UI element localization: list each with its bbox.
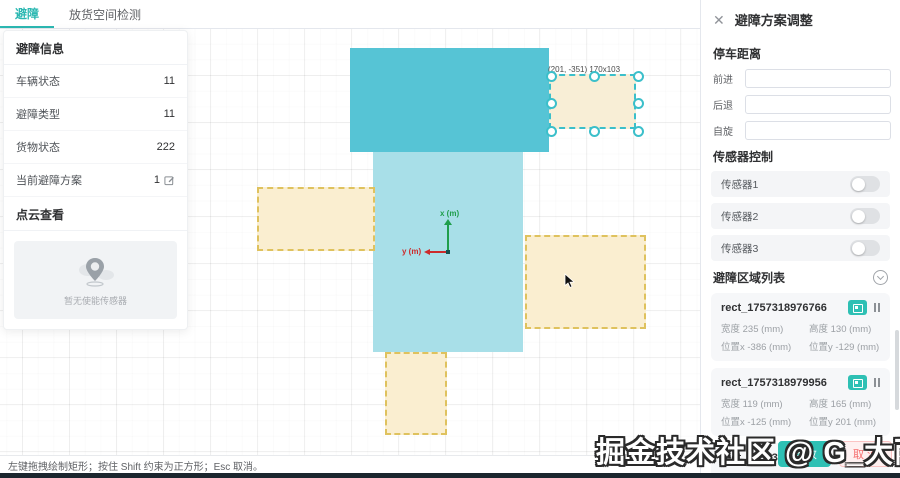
app-window: (201, -351) 170x103 x (m) y (m) 避障 放货空间检…	[0, 0, 900, 478]
axis-x-arrowhead	[444, 219, 452, 225]
resize-handle[interactable]	[589, 71, 600, 82]
crop-edit-icon[interactable]	[848, 375, 867, 390]
spec-pos-x: 位置x -386 (mm)	[721, 339, 809, 353]
card-top: rect_1757318976766	[721, 300, 880, 315]
pause-icon[interactable]	[874, 303, 881, 312]
toggle-knob	[852, 178, 865, 191]
resize-handle[interactable]	[633, 71, 644, 82]
info-row-avoid-type: 避障类型 11	[4, 98, 187, 131]
crop-edit-icon[interactable]	[848, 300, 867, 315]
tab-placement-space-detect[interactable]: 放货空间检测	[54, 0, 156, 28]
info-row-cargo-status: 货物状态 222	[4, 131, 187, 164]
location-pin-icon	[75, 254, 117, 290]
zone-yellow-left[interactable]	[257, 187, 375, 251]
info-row-label: 货物状态	[16, 139, 60, 155]
edit-icon[interactable]	[164, 175, 175, 186]
scrollbar-thumb[interactable]	[895, 330, 899, 410]
field-rotation-label: 自旋	[713, 123, 739, 138]
selected-rect-label: (201, -351) 170x103	[548, 65, 620, 74]
adjust-panel-header: ✕ 避障方案调整	[701, 0, 900, 37]
spec-height: 高度 165 (mm)	[809, 396, 880, 410]
spec-width: 宽度 235 (mm)	[721, 321, 809, 335]
forward-distance-input[interactable]	[745, 69, 891, 88]
info-row-value: 11	[164, 108, 175, 120]
mouse-cursor-icon	[563, 273, 577, 289]
toggle-knob	[852, 242, 865, 255]
zone-yellow-right[interactable]	[525, 235, 646, 329]
resize-handle[interactable]	[589, 126, 600, 137]
spec-width: 宽度 119 (mm)	[721, 396, 809, 410]
watermark-text: 掘金技术社区 @ G_大雨	[596, 429, 900, 471]
info-row-value: 222	[157, 141, 175, 153]
spec-pos-x: 位置x -125 (mm)	[721, 414, 809, 428]
rotation-distance-input[interactable]	[745, 121, 891, 140]
axis-origin	[446, 250, 450, 254]
bottom-strip	[0, 473, 900, 478]
sensor-row-1: 传感器1	[711, 171, 890, 197]
info-row-label: 车辆状态	[16, 73, 60, 89]
info-row-current-plan: 当前避障方案 1	[4, 164, 187, 197]
pointcloud-placeholder: 暂无使能传感器	[14, 241, 177, 319]
spec-pos-y: 位置y -129 (mm)	[809, 339, 880, 353]
field-forward: 前进	[713, 69, 888, 88]
zone-selected[interactable]: (201, -351) 170x103	[549, 74, 636, 129]
sensor-2-toggle[interactable]	[850, 208, 880, 224]
pause-icon[interactable]	[874, 378, 881, 387]
card-top: rect_1757318979956	[721, 375, 880, 390]
field-rotation: 自旋	[713, 121, 888, 140]
info-row-vehicle-status: 车辆状态 11	[4, 65, 187, 98]
info-row-label: 当前避障方案	[16, 172, 82, 188]
axis-x-arrow	[447, 224, 449, 251]
sensor-row-2: 传感器2	[711, 203, 890, 229]
spec-pos-y: 位置y 201 (mm)	[809, 414, 880, 428]
sensor-1-label: 传感器1	[721, 177, 758, 192]
axis-y-label: y (m)	[402, 247, 421, 256]
stop-distance-title: 停车距离	[713, 45, 888, 62]
sensor-2-label: 传感器2	[721, 209, 758, 224]
resize-handle[interactable]	[546, 71, 557, 82]
pointcloud-title: 点云查看	[4, 197, 187, 231]
info-row-value: 1	[154, 174, 175, 186]
card-icons	[848, 300, 881, 315]
sensor-control-title: 传感器控制	[713, 148, 888, 165]
info-row-value: 11	[164, 75, 175, 87]
axis-y-arrowhead	[424, 249, 430, 255]
rect-name: rect_1757318976766	[721, 302, 827, 314]
rect-specs: 宽度 119 (mm) 高度 165 (mm) 位置x -125 (mm) 位置…	[721, 396, 880, 428]
canvas-hint-text: 左键拖拽绘制矩形；按住 Shift 约束为正方形；Esc 取消。	[0, 458, 263, 473]
tab-placement-space-detect-label: 放货空间检测	[69, 6, 141, 23]
zone-yellow-bottom[interactable]	[385, 352, 447, 435]
field-forward-label: 前进	[713, 71, 739, 86]
sensor-3-toggle[interactable]	[850, 240, 880, 256]
resize-handle[interactable]	[546, 126, 557, 137]
adjust-panel-title: 避障方案调整	[735, 10, 813, 29]
collapse-icon[interactable]	[873, 270, 888, 285]
adjust-panel: ✕ 避障方案调整 停车距离 前进 后退 自旋 传感器控制 传感器1 传感器2 传…	[700, 0, 900, 473]
sensor-3-label: 传感器3	[721, 241, 758, 256]
area-list-item[interactable]: rect_1757318976766 宽度 235 (mm) 高度 130 (m…	[711, 293, 890, 361]
resize-handle[interactable]	[633, 98, 644, 109]
tab-bar: 避障 放货空间检测	[0, 0, 700, 29]
obstacle-info-title: 避障信息	[4, 31, 187, 65]
resize-handle[interactable]	[633, 126, 644, 137]
rect-name: rect_1757318979956	[721, 377, 827, 389]
field-backward: 后退	[713, 95, 888, 114]
tab-obstacle-avoidance-label: 避障	[15, 5, 39, 22]
card-icons	[848, 375, 881, 390]
obstacle-info-card: 避障信息 车辆状态 11 避障类型 11 货物状态 222 当前避障方案 1 点…	[3, 30, 188, 330]
sensor-row-3: 传感器3	[711, 235, 890, 261]
current-plan-value: 1	[154, 174, 160, 186]
sensor-1-toggle[interactable]	[850, 176, 880, 192]
close-icon[interactable]: ✕	[713, 13, 725, 27]
area-list-title: 避障区域列表	[713, 269, 785, 286]
area-list-item[interactable]: rect_1757318979956 宽度 119 (mm) 高度 165 (m…	[711, 368, 890, 436]
resize-handle[interactable]	[546, 98, 557, 109]
area-list-title-row: 避障区域列表	[713, 269, 888, 286]
rect-specs: 宽度 235 (mm) 高度 130 (mm) 位置x -386 (mm) 位置…	[721, 321, 880, 353]
backward-distance-input[interactable]	[745, 95, 891, 114]
tab-obstacle-avoidance[interactable]: 避障	[0, 0, 54, 28]
axis-x-label: x (m)	[440, 209, 459, 218]
spec-height: 高度 130 (mm)	[809, 321, 880, 335]
canvas-status-bar: 左键拖拽绘制矩形；按住 Shift 约束为正方形；Esc 取消。	[0, 455, 700, 475]
pointcloud-empty-text: 暂无使能传感器	[64, 294, 127, 307]
field-backward-label: 后退	[713, 97, 739, 112]
zone-teal-dark[interactable]	[350, 48, 549, 152]
info-row-label: 避障类型	[16, 106, 60, 122]
toggle-knob	[852, 210, 865, 223]
